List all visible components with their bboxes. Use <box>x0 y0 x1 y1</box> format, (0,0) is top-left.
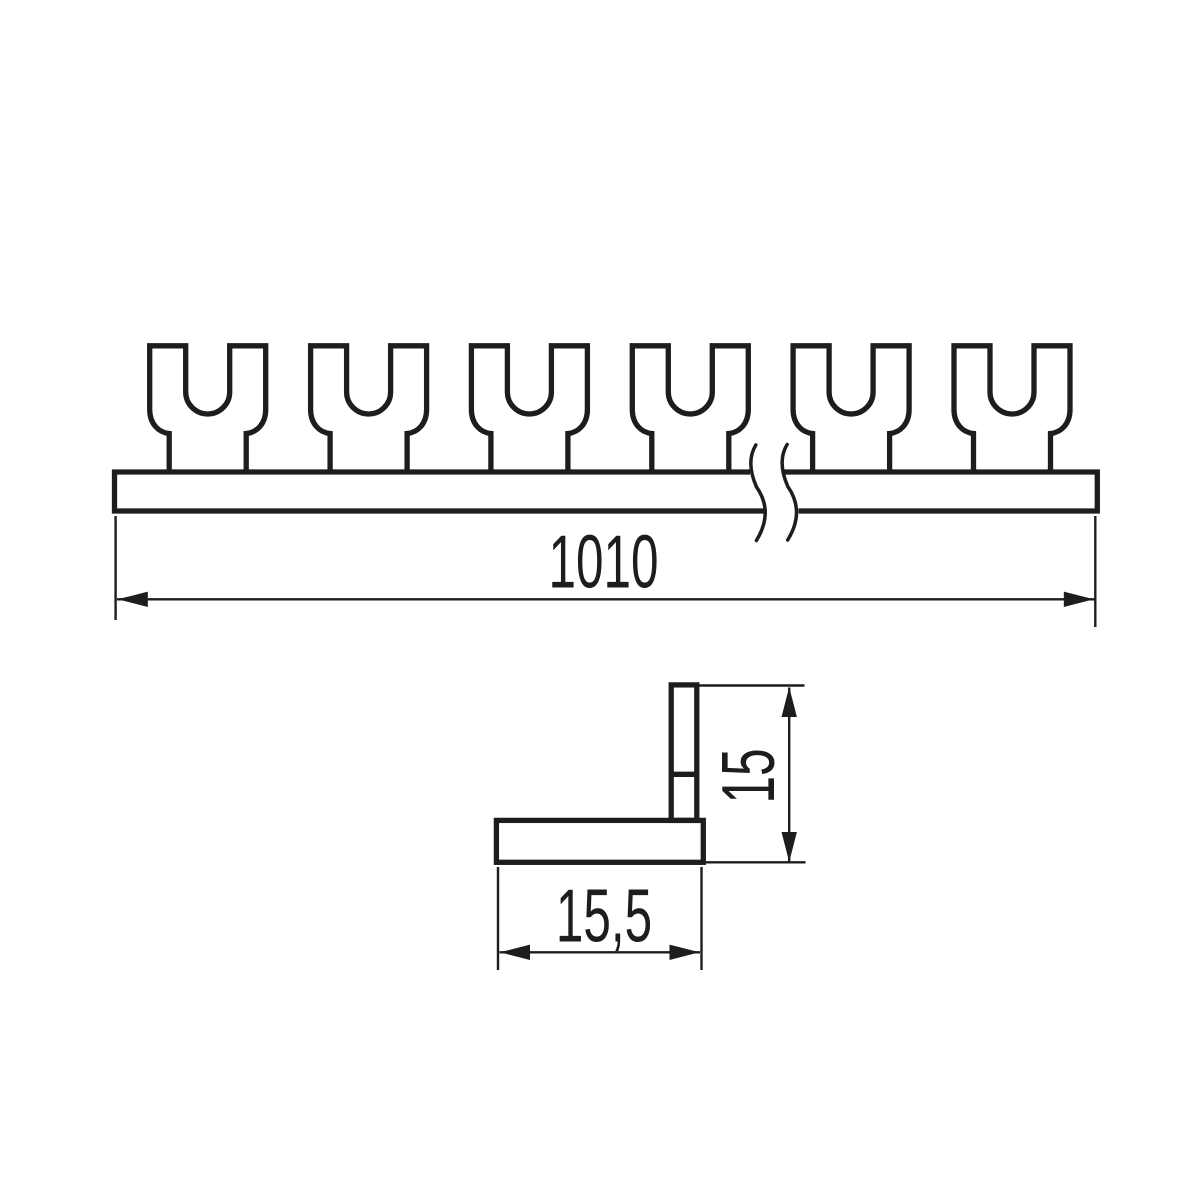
svg-text:15: 15 <box>707 748 791 803</box>
svg-text:1010: 1010 <box>548 520 658 604</box>
svg-text:15,5: 15,5 <box>556 874 652 958</box>
